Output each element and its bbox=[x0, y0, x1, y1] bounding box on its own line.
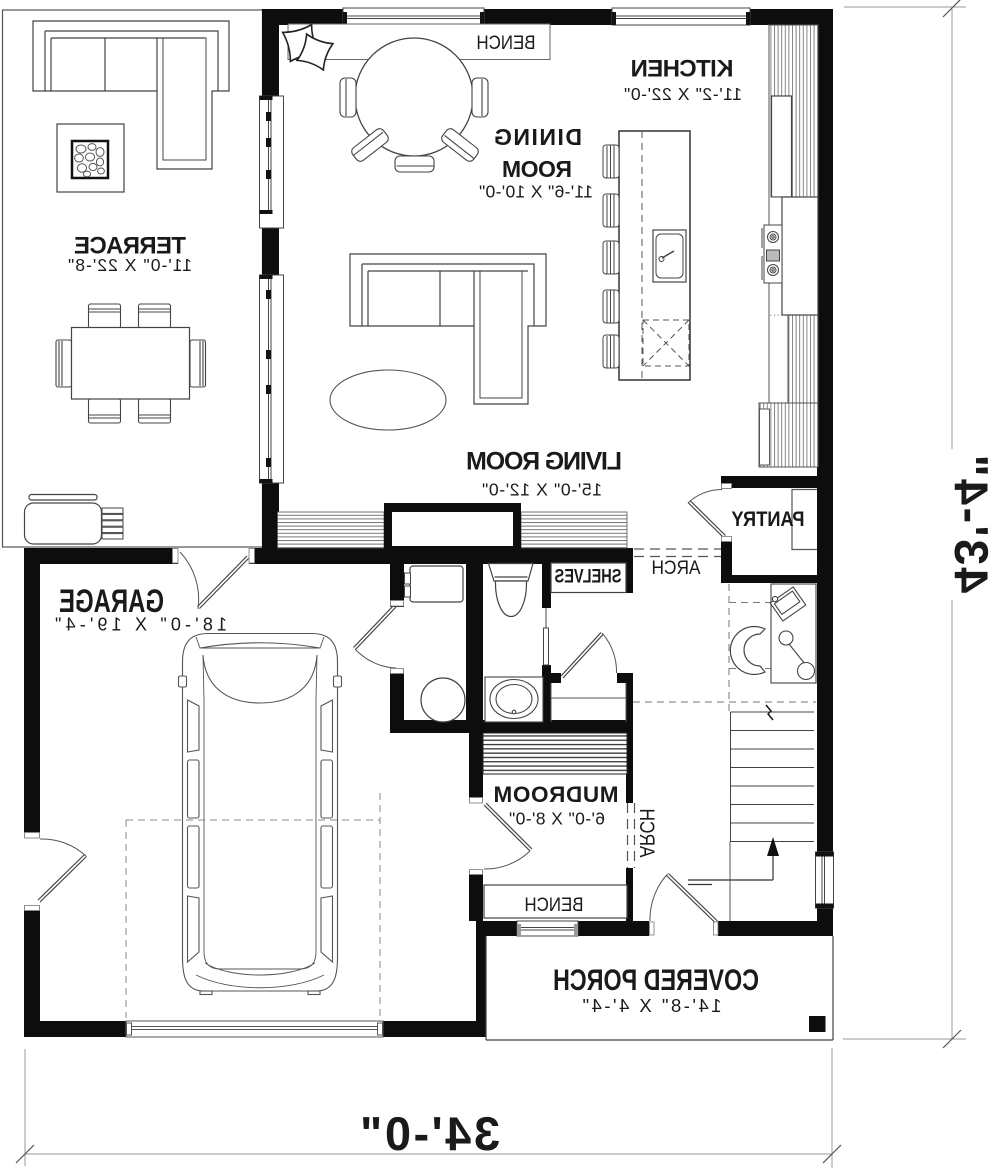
svg-text:11'-6" X 10'-0": 11'-6" X 10'-0" bbox=[479, 182, 593, 202]
svg-text:6'-0" X 8'-0": 6'-0" X 8'-0" bbox=[509, 809, 605, 829]
svg-text:11'-2" X 22'-0": 11'-2" X 22'-0" bbox=[624, 84, 742, 104]
svg-text:DINING: DINING bbox=[494, 124, 582, 150]
svg-text:11'-0" X 22'-8": 11'-0" X 22'-8" bbox=[68, 255, 192, 275]
svg-text:ROOM: ROOM bbox=[502, 156, 572, 182]
svg-text:COVERED PORCH: COVERED PORCH bbox=[553, 964, 759, 997]
svg-text:PANTRY: PANTRY bbox=[732, 508, 805, 531]
svg-text:ARCH: ARCH bbox=[652, 558, 701, 579]
svg-text:15'-0" X 12'-0": 15'-0" X 12'-0" bbox=[482, 480, 602, 500]
svg-text:34'-0": 34'-0" bbox=[360, 1107, 500, 1160]
svg-text:KITCHEN: KITCHEN bbox=[631, 56, 734, 83]
svg-text:BENCH: BENCH bbox=[477, 33, 536, 54]
svg-text:43'-4": 43'-4" bbox=[945, 455, 998, 594]
svg-text:ARCH: ARCH bbox=[635, 809, 658, 858]
svg-text:MUDROOM: MUDROOM bbox=[494, 782, 619, 807]
svg-text:BENCH: BENCH bbox=[525, 895, 584, 916]
svg-text:SHELVES: SHELVES bbox=[555, 567, 622, 588]
svg-text:LIVING ROOM: LIVING ROOM bbox=[466, 448, 622, 476]
